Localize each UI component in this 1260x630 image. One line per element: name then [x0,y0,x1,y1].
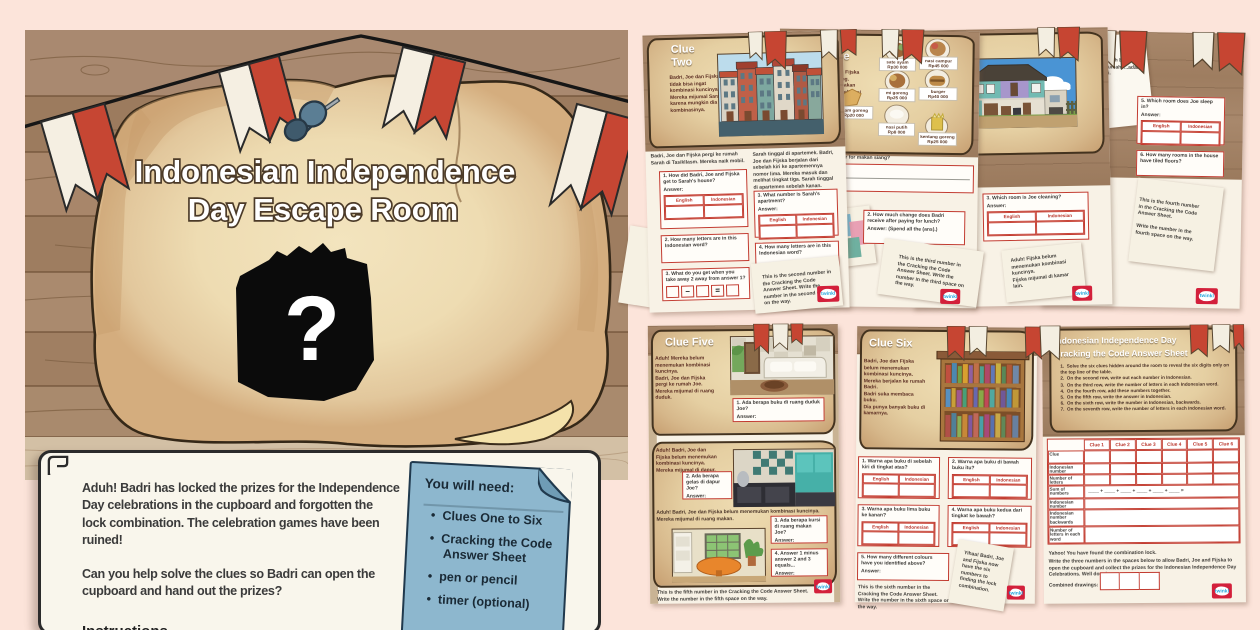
svg-text:Rp45 000: Rp45 000 [928,63,949,68]
svg-text:Indonesian Independence: Indonesian Independence [135,154,516,189]
svg-text:Rp20 000: Rp20 000 [844,113,865,118]
svg-text:Day Escape Room: Day Escape Room [188,192,459,227]
svg-text:?: ? [284,278,340,380]
svg-text:Rp25 000: Rp25 000 [887,95,908,100]
svg-text:Rp40 000: Rp40 000 [928,94,949,99]
svg-text:Rp25 000: Rp25 000 [927,139,948,144]
svg-text:Rp8 000: Rp8 000 [888,130,906,135]
